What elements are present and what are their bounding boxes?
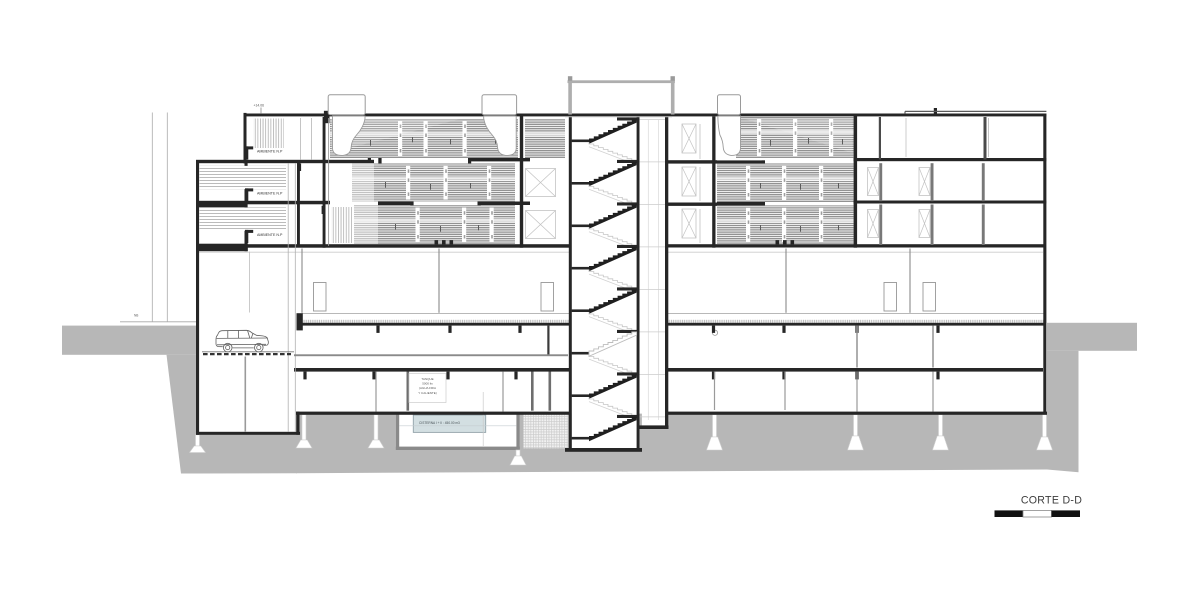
svg-text:TANQUE: TANQUE — [421, 377, 433, 381]
svg-text:CISTERNA I + II : 450.00 m3: CISTERNA I + II : 450.00 m3 — [419, 421, 460, 425]
svg-text:5000 lts: 5000 lts — [422, 382, 433, 386]
svg-text:NB: NB — [134, 314, 138, 318]
svg-text:(AGUA FRIA: (AGUA FRIA — [419, 386, 436, 390]
svg-text:AMBIENTE N.P: AMBIENTE N.P — [257, 233, 283, 237]
svg-text:AMBIENTE N.P: AMBIENTE N.P — [257, 192, 283, 196]
svg-text:Y CALIENTE): Y CALIENTE) — [418, 391, 436, 395]
svg-text:+14.06: +14.06 — [254, 104, 265, 108]
svg-text:CORTE D-D: CORTE D-D — [1021, 495, 1082, 507]
svg-text:AMBIENTE N.P: AMBIENTE N.P — [257, 150, 283, 154]
